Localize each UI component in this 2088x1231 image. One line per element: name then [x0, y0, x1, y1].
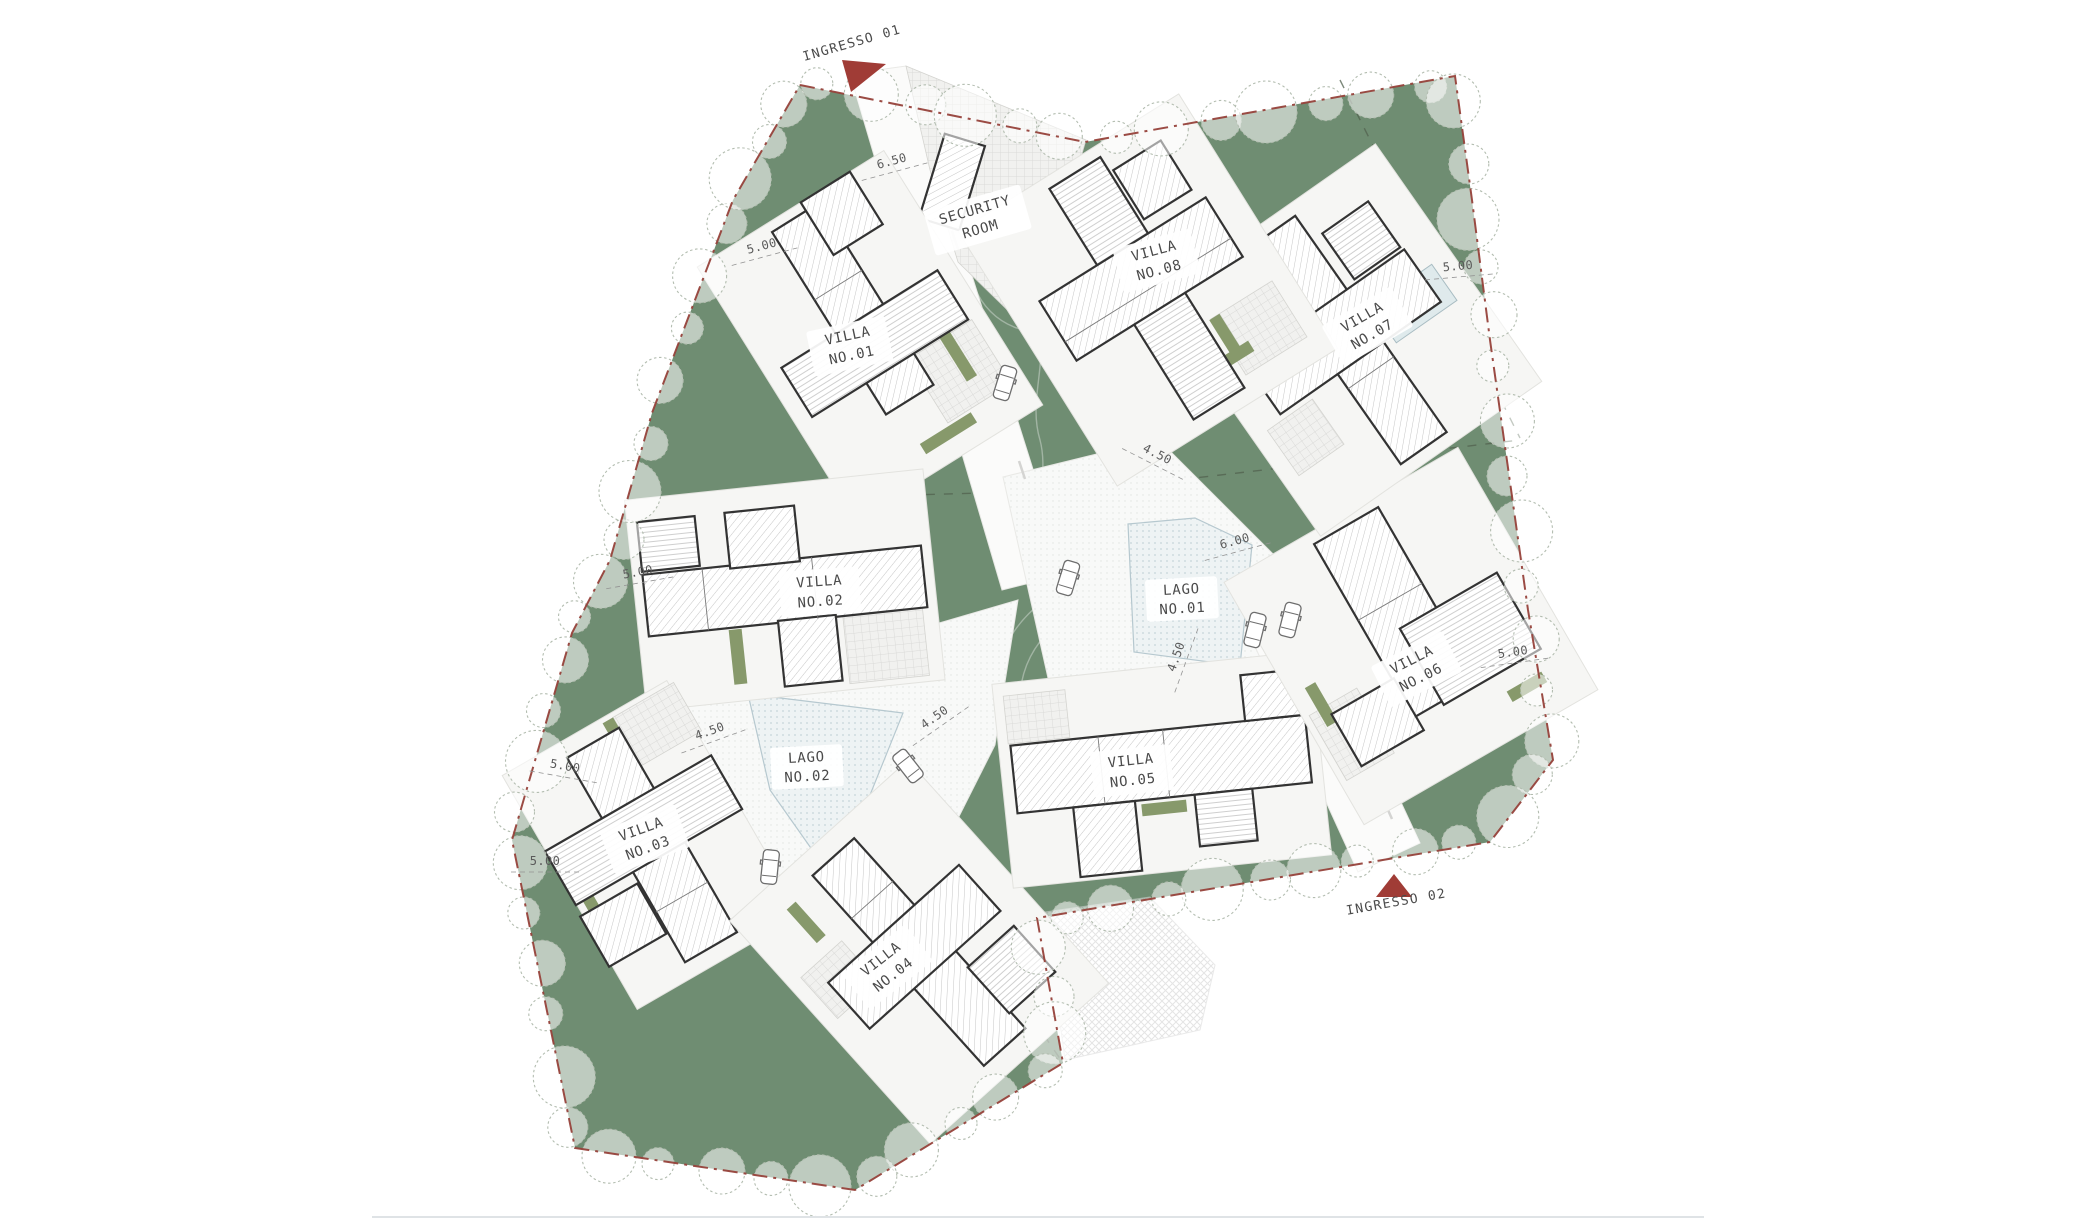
tree-icon	[1471, 292, 1517, 338]
tree-icon	[548, 1107, 588, 1147]
tree-icon	[699, 1148, 745, 1194]
svg-text:LAGO: LAGO	[788, 749, 826, 767]
svg-text:NO.01: NO.01	[1159, 600, 1206, 618]
svg-text:NO.02: NO.02	[784, 768, 831, 786]
tree-icon	[709, 148, 771, 210]
svg-text:NO.02: NO.02	[797, 592, 844, 611]
tree-icon	[1251, 860, 1291, 900]
tree-icon	[1480, 394, 1534, 448]
tree-icon	[634, 427, 668, 461]
site-plan-canvas: INGRESSO 01 INGRESSO 02 SECURITY ROOM LA…	[0, 0, 2088, 1231]
tree-icon	[574, 554, 628, 608]
tree-icon	[1287, 844, 1341, 898]
tree-icon	[801, 68, 833, 100]
tree-icon	[1449, 144, 1489, 184]
tree-icon	[495, 792, 535, 832]
tree-icon	[508, 897, 540, 929]
tree-icon	[1504, 569, 1538, 603]
lago-01-label: LAGO NO.01	[1145, 576, 1219, 622]
tree-icon	[1437, 188, 1499, 250]
svg-text:5.00: 5.00	[530, 854, 561, 868]
tree-icon	[945, 1108, 977, 1140]
tree-icon	[1341, 845, 1373, 877]
tree-icon	[1235, 81, 1297, 143]
tree-icon	[1426, 74, 1480, 128]
tree-icon	[527, 694, 561, 728]
lago-02-label: LAGO NO.02	[770, 744, 844, 790]
tree-icon	[1309, 87, 1343, 121]
tree-icon	[642, 1148, 674, 1180]
tree-icon	[753, 125, 787, 159]
svg-text:5.00: 5.00	[1442, 258, 1474, 275]
villa-no-02-label: VILLANO.02	[778, 566, 861, 617]
tree-icon	[1521, 674, 1553, 706]
svg-text:VILLA: VILLA	[796, 572, 843, 591]
tree-icon	[1028, 1054, 1062, 1088]
tree-icon	[673, 249, 727, 303]
tree-icon	[1036, 113, 1082, 159]
tree-icon	[1393, 829, 1439, 875]
tree-icon	[934, 84, 996, 146]
tree-icon	[604, 520, 644, 560]
tree-icon	[637, 357, 683, 403]
villa-no-05-label: VILLANO.05	[1090, 744, 1174, 798]
tree-icon	[671, 312, 703, 344]
tree-icon	[789, 1155, 851, 1217]
tree-icon	[1491, 500, 1553, 562]
tree-icon	[1152, 882, 1186, 916]
footer-divider-line	[372, 1216, 1704, 1218]
tree-icon	[543, 637, 589, 683]
svg-text:LAGO: LAGO	[1163, 581, 1201, 599]
tree-icon	[761, 81, 807, 127]
tree-icon	[519, 940, 565, 986]
tree-icon	[582, 1129, 636, 1183]
tree-icon	[1477, 786, 1539, 848]
tree-icon	[1442, 825, 1476, 859]
tree-icon	[1348, 72, 1394, 118]
tree-icon	[1477, 350, 1509, 382]
